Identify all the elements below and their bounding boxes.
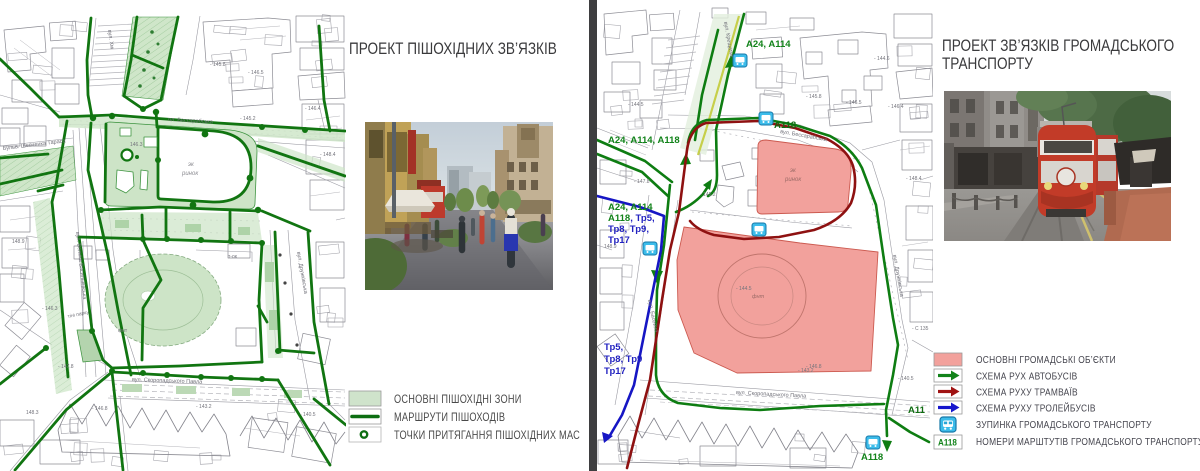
svg-text:- 146.4: - 146.4 [305, 106, 321, 112]
svg-text:- 146.5: - 146.5 [846, 100, 862, 106]
svg-text:вул. Велика Васильківська: вул. Велика Васильківська [74, 232, 87, 301]
svg-text:- 143.2: - 143.2 [798, 368, 814, 374]
svg-text:ЗУПИНКА ГРОМАДСЬКОГО ТРАНСПОРТ: ЗУПИНКА ГРОМАДСЬКОГО ТРАНСПОРТУ [976, 419, 1152, 431]
svg-text:- 146.5: - 146.5 [248, 70, 264, 76]
svg-text:A118, Тр5,: A118, Тр5, [608, 213, 655, 224]
svg-text:146.3: 146.3 [130, 142, 143, 148]
svg-text:ОСНОВНІ ГРОМАДСЬКІ ОБ’ЄКТИ: ОСНОВНІ ГРОМАДСЬКІ ОБ’ЄКТИ [976, 354, 1116, 366]
svg-text:СХЕМА РУХ АВТОБУСІВ: СХЕМА РУХ АВТОБУСІВ [976, 371, 1078, 383]
svg-text:Тр8, Тр9,: Тр8, Тр9, [608, 224, 649, 235]
svg-text:- 144.5: - 144.5 [736, 286, 752, 292]
svg-text:- 145.2: - 145.2 [700, 192, 716, 198]
svg-text:148.9: 148.9 [12, 239, 25, 245]
svg-text:вул. Скоропадського Павла: вул. Скоропадського Павла [132, 377, 203, 385]
svg-text:ринок: ринок [181, 171, 199, 177]
svg-text:- 148.4: - 148.4 [906, 176, 922, 182]
svg-text:ОСНОВНІ ПІШОХІДНІ ЗОНИ: ОСНОВНІ ПІШОХІДНІ ЗОНИ [394, 394, 522, 406]
svg-text:A11: A11 [908, 405, 926, 416]
svg-text:- 144.5: - 144.5 [628, 102, 644, 108]
svg-text:- 147.8: - 147.8 [58, 364, 74, 370]
svg-text:т-ок: т-ок [228, 254, 238, 260]
svg-text:вул. Дружківська: вул. Дружківська [295, 251, 308, 295]
svg-text:- 143.2: - 143.2 [196, 404, 212, 410]
svg-text:тіні парку: тіні парку [67, 309, 90, 319]
svg-text:- 145.8: - 145.8 [210, 62, 226, 68]
svg-text:- 146.4: - 146.4 [888, 104, 904, 110]
svg-text:- 146.8: - 146.8 [92, 406, 108, 412]
svg-text:A24, A114: A24, A114 [608, 202, 653, 213]
svg-text:ринок: ринок [784, 177, 802, 183]
svg-text:ТОЧКИ ПРИТЯГАННЯ ПІШОХІДНИХ МА: ТОЧКИ ПРИТЯГАННЯ ПІШОХІДНИХ МАС [394, 430, 580, 442]
svg-text:СХЕМА РУХУ ТРАМВАЇВ: СХЕМА РУХУ ТРАМВАЇВ [976, 387, 1078, 399]
svg-text:вул. Хм: вул. Хм [106, 29, 115, 49]
svg-text:- C 135: - C 135 [912, 326, 929, 332]
svg-text:148.9: 148.9 [604, 244, 617, 250]
svg-text:фнт: фнт [118, 328, 128, 334]
svg-text:СХЕМА РУХУ ТРОЛЕЙБУСІВ: СХЕМА РУХУ ТРОЛЕЙБУСІВ [976, 402, 1096, 415]
svg-text:- 148.4: - 148.4 [320, 152, 336, 158]
svg-text:вул. Дружківська: вул. Дружківська [891, 254, 904, 298]
svg-text:Тр8, Тр9: Тр8, Тр9 [604, 354, 642, 365]
svg-text:148.3: 148.3 [26, 410, 39, 416]
svg-text:- 140.5: - 140.5 [300, 412, 316, 418]
svg-text:- 140.5: - 140.5 [898, 376, 914, 382]
svg-text:- 147.8: - 147.8 [634, 179, 650, 185]
svg-text:- 145.8: - 145.8 [806, 94, 822, 100]
svg-text:- 144.6: - 144.6 [874, 56, 890, 62]
svg-text:A24, A114, A118: A24, A114, A118 [608, 135, 680, 146]
svg-text:НОМЕРИ МАРШТУТІВ ГРОМАДСЬКОГО: НОМЕРИ МАРШТУТІВ ГРОМАДСЬКОГО ТРАНСПОРТУ [976, 436, 1200, 448]
svg-text:- 146.3: - 146.3 [42, 306, 58, 312]
svg-text:- 145.2: - 145.2 [240, 116, 256, 122]
svg-text:МАРШРУТИ ПІШОХОДІВ: МАРШРУТИ ПІШОХОДІВ [394, 412, 505, 424]
svg-text:Тр5,: Тр5, [604, 342, 623, 353]
svg-text:Тр17: Тр17 [604, 366, 626, 377]
svg-text:фнт: фнт [752, 294, 765, 300]
svg-text:A24, A114: A24, A114 [746, 39, 791, 50]
svg-text:A118: A118 [938, 437, 957, 448]
svg-text:A118: A118 [861, 452, 883, 463]
